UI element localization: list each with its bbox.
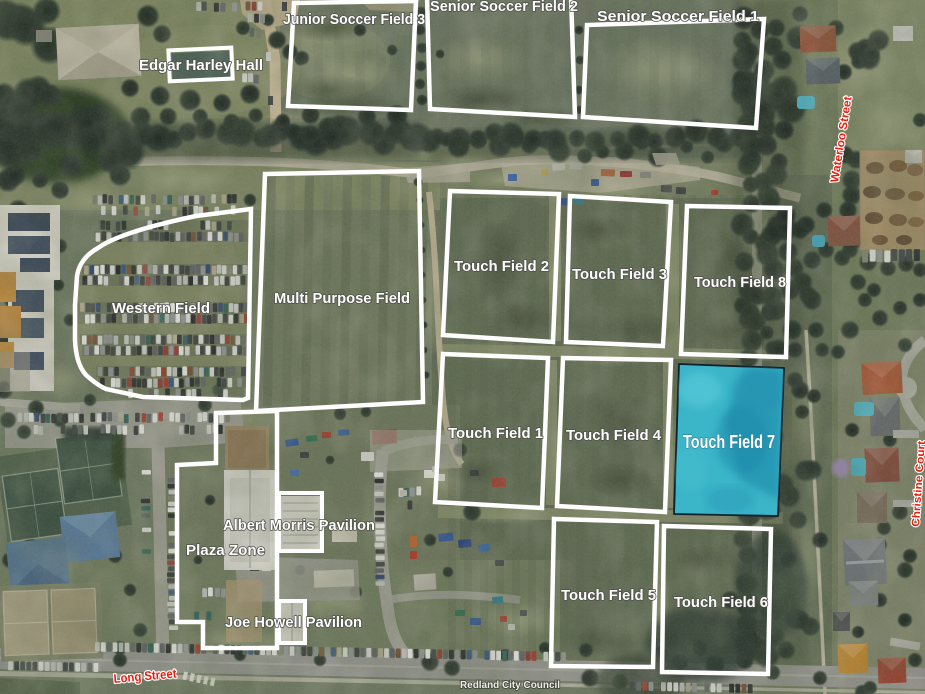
svg-text:Redland City Council: Redland City Council: [460, 679, 560, 691]
svg-text:Western Field: Western Field: [112, 300, 210, 317]
svg-text:Touch Field 7: Touch Field 7: [683, 432, 775, 452]
svg-text:Touch Field 1: Touch Field 1: [448, 425, 543, 442]
svg-text:Plaza Zone: Plaza Zone: [186, 542, 265, 559]
svg-text:Touch Field 4: Touch Field 4: [566, 427, 662, 444]
svg-text:Touch Field 2: Touch Field 2: [454, 258, 549, 275]
svg-text:Touch Field 5: Touch Field 5: [561, 587, 656, 604]
svg-text:Junior Soccer Field 3: Junior Soccer Field 3: [283, 11, 425, 28]
svg-text:Joe Howell Pavilion: Joe Howell Pavilion: [225, 614, 362, 631]
svg-text:Touch Field 8: Touch Field 8: [694, 274, 786, 291]
svg-text:Senior Soccer Field 1: Senior Soccer Field 1: [597, 8, 759, 25]
svg-text:Touch Field 6: Touch Field 6: [674, 594, 768, 611]
svg-text:Edgar Harley Hall: Edgar Harley Hall: [139, 57, 263, 74]
svg-text:Albert Morris Pavilion: Albert Morris Pavilion: [223, 517, 375, 534]
svg-text:Multi Purpose Field: Multi Purpose Field: [274, 290, 410, 307]
svg-text:Senior Soccer Field 2: Senior Soccer Field 2: [430, 0, 578, 15]
svg-text:Touch Field 3: Touch Field 3: [572, 266, 667, 283]
